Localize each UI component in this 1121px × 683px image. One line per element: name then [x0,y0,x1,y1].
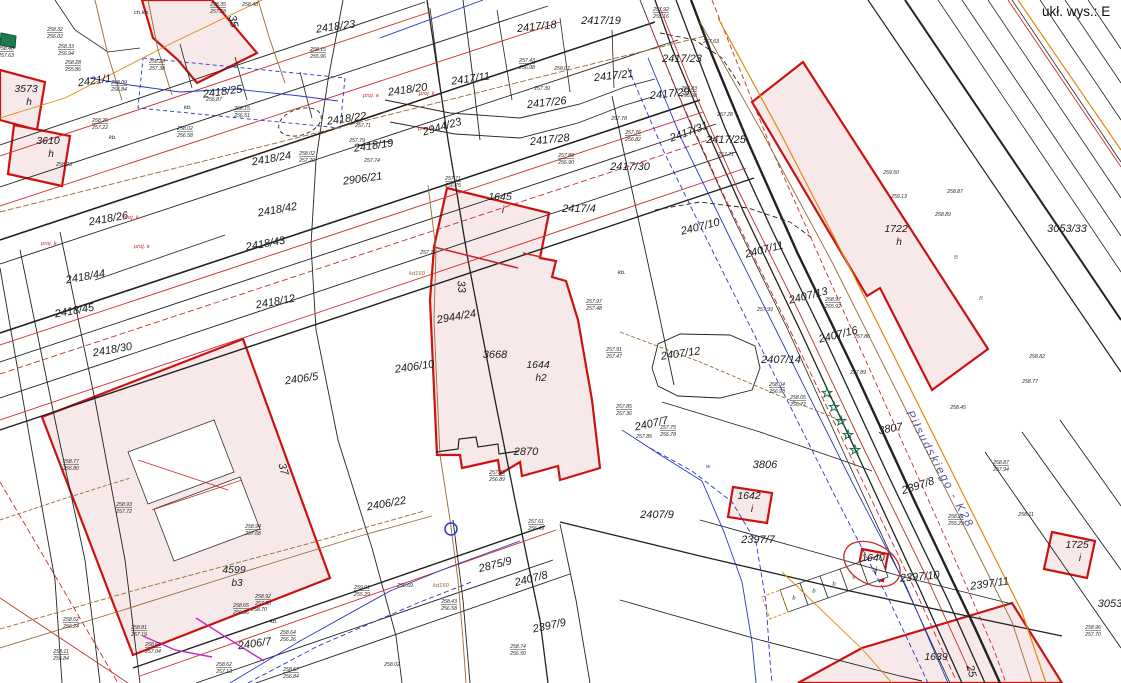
building-type-label: b3 [231,578,243,589]
elevation-bottom: 256.80 [62,466,79,472]
elevation-top: 257.76 [624,130,641,136]
elevation-top: 257.28 [716,112,733,118]
elevation-top: 259.13 [890,194,907,200]
elevation-top: 258.15 [233,106,250,112]
elevation-top: 257.61 [527,519,544,525]
parcel-label: 2397/7 [740,534,776,546]
elevation-top: 258.32 [46,27,63,33]
elevation-bottom: 256.94 [57,51,74,57]
elevation-bottom: 256.75 [444,183,461,189]
elevation-top: 258.74 [509,644,526,650]
elevation-bottom: 257.63 [0,53,14,59]
elevation-bottom: 257.72 [115,509,132,515]
elevation-bottom: 256.49 [527,526,544,532]
elevation-bottom: 256.82 [624,137,641,143]
map-line-k [497,10,512,100]
elevation-bottom: 257.94 [992,467,1009,473]
parcel-label: 2397/10 [898,569,941,585]
elevation-bottom: 256.84 [282,674,299,680]
elevation-top: 257.92 [652,7,669,13]
elevation-top: 257.91 [605,347,622,353]
elevation-top: 258.09 [110,80,127,86]
parcel-label: 2417/23 [661,53,703,65]
building-3573 [0,70,45,130]
elevation-top: 258.89 [934,212,951,218]
parcel-label: 2418/23 [314,18,357,36]
map-line-k [560,18,570,92]
parcel-label: 3053/33 [1047,223,1088,235]
elevation-top: 258.15 [309,47,326,53]
elevation-top: 258.93 [115,502,132,508]
annotation-text: w [706,464,711,470]
building-number-label: 3610 [36,135,60,147]
elevation-bottom: 255.98 [680,93,697,99]
annotation-text: proj. k [133,244,151,250]
elevation-top: 257.88 [557,153,574,159]
elevation-bottom: 256.78 [659,432,676,438]
elevation-bottom: 256.98 [768,389,785,395]
elevation-top: 258.62 [62,617,79,623]
elevation-bottom: 255.96 [309,54,326,60]
parcel-label: 2407/14 [760,354,801,366]
building-type-label: h [896,237,902,248]
elevation-bottom: 255.86 [64,67,81,73]
annotation-text: proj. k [40,241,58,247]
elevation-bottom: 256.89 [488,477,505,483]
elevation-top: 257.83 [680,86,697,92]
elevation-top: 257.43 [518,58,535,64]
elevation-bottom: 257.36 [615,411,632,417]
elevation-top: 258.35 [209,2,226,8]
parcel-label: 3053 [1098,598,1121,610]
parcel-label: 2406/5 [283,371,320,388]
cadastral-map[interactable]: bbbbb 2418/232417/182417/192417/232417/2… [0,0,1121,683]
elevation-top: 258.77 [62,459,80,465]
elevation-top: 259.50 [882,170,899,176]
elevation-top: 258.62 [215,662,232,668]
elevation-top: 258.11 [52,649,69,655]
building-number-label: 1722 [884,223,908,235]
parcel-label: 2406/10 [393,358,436,376]
elevation-top: 259.01 [353,585,370,591]
elevation-bottom: 257.04 [144,649,161,655]
elevation-bottom: 257.47 [605,354,623,360]
elevation-top: 257.78 [610,116,627,122]
parcel-label: 2417/19 [580,15,621,27]
elevation-top: 257.39 [533,86,550,92]
elevation-top: 257.99 [756,307,773,313]
elevation-top: 257.71 [354,123,371,129]
elevation-top: 258.65 [232,603,249,609]
parcel-label: 2407/9 [639,509,674,521]
annotation-text: proj. e [362,93,380,99]
elevation-bottom: 257.22 [91,125,108,131]
map-line-r [0,22,560,206]
elevation-top: 258.02 [383,662,400,668]
parcel-label: 2870 [513,446,539,458]
map-line-r [1008,0,1121,167]
building-number-label: 1642 [737,490,761,502]
elevation-bottom: 255.16 [652,14,669,20]
elevation-top: 258.28 [148,59,165,65]
annotation-text: kb. [109,135,117,141]
elevation-bottom: 256.50 [509,651,526,657]
parcel-label: 2418/12 [254,293,296,312]
annotation-text: B [954,255,958,261]
parcel-label: 2417/25 [705,134,747,146]
map-line-k [95,235,225,280]
parcel-label: 2407/10 [679,216,722,238]
annotation-text: kb. [270,619,278,625]
height-datum-note: ukł. wys.: E [1042,4,1110,19]
elevation-bottom: 256.98 [518,65,535,71]
elevation-top: 257.93 [488,470,505,476]
elevation-top: 258.63 [144,642,161,648]
parcel-label: 2875/9 [477,555,514,575]
elevation-top: 257.63 [702,39,719,45]
parcel-label: 2418/42 [256,201,298,220]
building-number-label: 1645 [488,191,512,203]
map-canvas[interactable]: bbbbb 2418/232417/182417/192417/232417/2… [0,0,1121,683]
elevation-top: 256.87 [205,97,223,103]
building-type-label: h2 [535,373,547,384]
elevation-top: 257.74 [363,158,380,164]
annotation-text: ch.kb. [134,10,149,16]
elevation-top: 258.77 [1021,379,1039,385]
map-line-k [300,72,312,118]
parcel-label: 2417/18 [515,19,558,35]
elevation-bottom: 257.20 [298,158,315,164]
elevation-top: 257.85 [635,434,652,440]
map-line-k [700,520,1012,604]
parcel-label: 2406/7 [236,636,273,653]
parcel-label: 2397/11 [968,575,1009,592]
elevation-bottom: 257.48 [585,306,602,312]
elevation-top: 258.92 [254,594,271,600]
annotation-text: proj. k [122,215,140,221]
elevation-bottom: 256.51 [233,113,250,119]
elevation-top: 258.96 [1084,625,1101,631]
elevation-top: 258.11 [1017,512,1034,518]
annotation-text: proj. k [418,91,436,97]
building-1644-1645 [430,188,600,480]
building-number-label: 1640 [861,552,885,564]
annotation-text: kd160 [433,583,450,589]
map-line-b [622,430,756,683]
elevation-top: 258.43 [440,599,457,605]
building-type-label: h [26,97,32,108]
elevation-top: 258.82 [1028,354,1045,360]
elevation-top: 258.67 [282,667,300,673]
parcel-label: 3668 [483,349,508,361]
elevation-bottom: 256.58 [440,606,457,612]
elevation-bottom: 256.84 [52,656,69,662]
elevation-top: 257.86 [853,334,870,340]
elevation-top: 258.07 [553,66,571,72]
annotation-text: B [979,296,983,302]
elevation-bottom: 256.24 [62,624,79,630]
elevation-top: 258.87 [946,189,964,195]
elevation-bottom: 256.90 [557,160,574,166]
elevation-top: 257.71 [444,176,461,182]
elevation-bottom: 256.26 [279,637,296,643]
parcel-label: 2417/4 [561,203,596,215]
building-number-label: 1644 [526,359,550,371]
elevation-bottom: 255.92 [824,304,841,310]
parcel-label: 3807 [877,421,904,437]
map-line-k [0,22,655,240]
elevation-top: 257.79 [348,138,365,144]
elevation-bottom: 257.13 [215,669,232,675]
parcel-label: 2421/1 [76,73,112,90]
map-line-k [652,334,760,398]
elevation-top: 257.76 [419,250,436,256]
elevation-bottom: 256.58 [176,133,193,139]
elevation-top: 258.05 [789,395,806,401]
elevation-bottom: 257.19 [130,632,147,638]
annotation-text: kb. [618,270,626,276]
elevation-top: 258.64 [279,630,296,636]
parcel-label: 2407/11 [743,240,785,261]
elevation-top: 258.02 [298,151,315,157]
elevation-top: 258.70 [250,607,267,613]
elevation-top: 258.48 [241,2,258,8]
elevation-bottom: 257.68 [244,531,261,537]
parcel-label: 2418/30 [91,341,134,360]
map-line-o [1018,0,1121,150]
parcel-label: 2418/44 [64,268,106,287]
annotation-text: kd160 [409,271,426,277]
elevation-bottom: 257.70 [1084,632,1101,638]
street-name-label: Piłsudskiego - K28 [903,409,975,531]
map-line-r [0,168,746,420]
elevation-top: 257.71 [717,152,734,158]
elevation-bottom: 256.02 [46,34,63,40]
parcel-label: 2418/45 [53,302,96,321]
parcel-label: 2417/30 [609,161,651,173]
elevation-top: 258.87 [992,460,1010,466]
annotation-text: kb. [184,105,192,111]
map-line-k [988,0,1121,198]
elevation-bottom: 257.38 [148,66,165,72]
building-number-label: 3573 [14,83,38,95]
building-1722 [752,62,988,390]
parcel-label: 2417/21 [592,68,634,84]
elevation-top: 258.28 [64,60,81,66]
parcel-label: 2418/24 [250,150,292,169]
elevation-bottom: 256.72 [789,402,806,408]
building-number-label: 1725 [1065,539,1089,551]
elevation-top: 258.45 [949,405,966,411]
elevation-top: 257.97 [585,299,603,305]
elevation-bottom: 255.29 [353,592,370,598]
elevation-top: 258.33 [57,44,74,50]
elevation-top: 258.02 [176,126,193,132]
building-type-label: h [48,149,54,160]
parcel-label: 2418/43 [244,235,287,254]
map-line-k [1060,420,1121,506]
map-line-k [256,574,570,683]
elevation-top: 257.89 [849,370,866,376]
elevation-top: 258.25 [91,118,108,124]
map-line-k [938,0,1121,272]
elevation-top: 257.85 [615,404,632,410]
building-number-label: 1639 [924,651,948,663]
parcel-label: 2397/9 [531,617,567,636]
annotation-text: proj. k [417,126,435,132]
elevation-top: 258.04 [768,382,785,388]
parcel-label: 2417/11 [449,70,490,87]
parcel-label: 2906/21 [341,170,383,188]
map-line-b [650,448,772,683]
parcel-label: 3806 [753,459,778,471]
tree-star-icon [836,416,846,425]
elevation-top: 258.48 [0,46,14,52]
elevation-top: 258.94 [244,524,261,530]
map-line-k [0,124,716,362]
elevation-top: 256.69 [396,583,413,589]
elevation-bottom: 257.28 [209,9,226,15]
building-number-label: 4599 [222,564,246,576]
map-line-k [463,0,480,140]
elevation-bottom: 256.86 [232,610,249,616]
elevation-top: 258.97 [824,297,842,303]
elevation-bottom: 256.84 [110,87,127,93]
elevation-top: 257.75 [659,425,676,431]
elevation-top: 258.81 [130,625,147,631]
parcel-label: 2406/22 [365,495,407,514]
elevation-top: 258.23 [55,162,72,168]
map-line-k [560,524,590,683]
house-number-label: 33 [454,280,467,294]
